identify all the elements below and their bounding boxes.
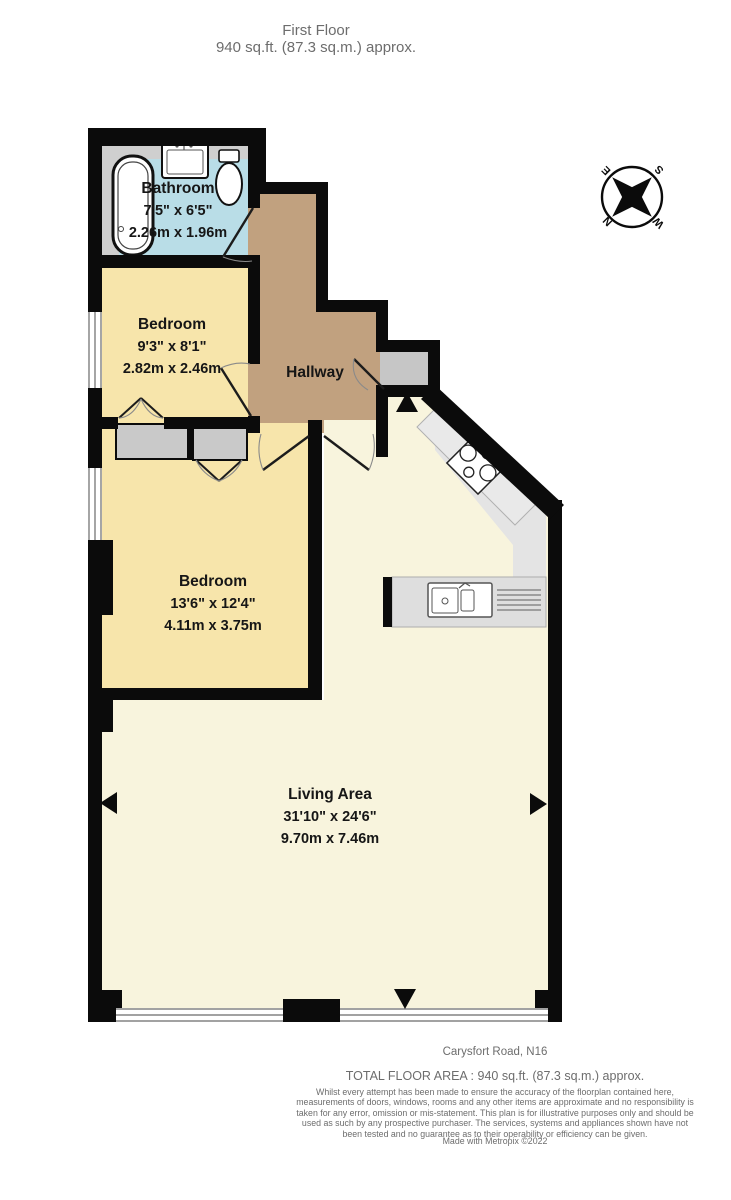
bedroom2-dims-metric: 4.11m x 3.75m [164,615,262,637]
living-area-dims-metric: 9.70m x 7.46m [281,828,379,850]
wardrobe-1 [116,424,188,459]
floorplan-page: First Floor 940 sq.ft. (87.3 sq.m.) appr… [0,0,731,1200]
bedroom2-label: Bedroom 13'6" x 12'4" 4.11m x 3.75m [164,571,262,637]
bedroom1-dims-metric: 2.82m x 2.46m [123,358,221,380]
credit-text: Made with Metropix ©2022 [295,1136,695,1146]
bedroom2-name: Bedroom [164,571,262,593]
window-living-bottom-left [116,1008,283,1022]
bedroom1-name: Bedroom [123,314,221,336]
bathroom-dims-imperial: 7'5" x 6'5" [129,200,227,222]
total-floor-area: TOTAL FLOOR AREA : 940 sq.ft. (87.3 sq.m… [245,1069,731,1083]
compass-west-label: W [651,214,667,230]
bathroom-label: Bathroom 7'5" x 6'5" 2.26m x 1.96m [129,178,227,244]
hallway-label: Hallway [286,362,344,384]
bedroom1-label: Bedroom 9'3" x 8'1" 2.82m x 2.46m [123,314,221,380]
living-area-name: Living Area [281,784,379,806]
bathroom-name: Bathroom [129,178,227,200]
compass-rose: N E S W [575,136,694,255]
wash-basin-icon [162,143,208,178]
bedroom1-door-opening [248,364,260,416]
window-bedroom2-left [88,468,102,540]
bedroom2-dims-imperial: 13'6" x 12'4" [164,593,262,615]
entry-cupboard-floor [380,350,430,390]
compass-south-label: S [653,163,667,177]
floorplan-drawing: N E S W [0,0,731,1200]
property-address: Carysfort Road, N16 [295,1046,695,1058]
disclaimer-text: Whilst every attempt has been made to en… [293,1087,697,1139]
wardrobe-2 [193,424,247,460]
window-bedroom1-left [88,312,102,388]
window-living-bottom-right [340,1008,548,1022]
living-area-dims-imperial: 31'10" x 24'6" [281,806,379,828]
bedroom1-dims-imperial: 9'3" x 8'1" [123,336,221,358]
bedroom2-floor [96,423,312,693]
hallway-name: Hallway [286,362,344,384]
bathroom-dims-metric: 2.26m x 1.96m [129,222,227,244]
living-area-label: Living Area 31'10" x 24'6" 9.70m x 7.46m [281,784,379,850]
